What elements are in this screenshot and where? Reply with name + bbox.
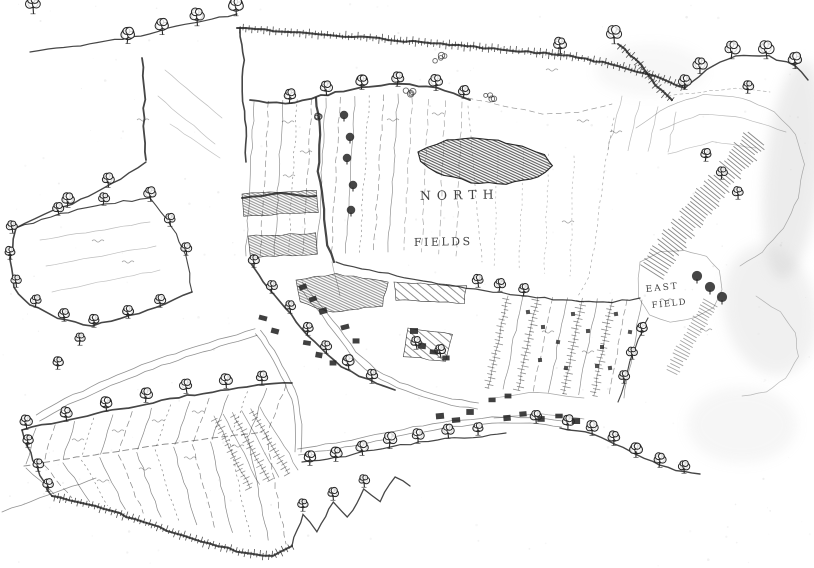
field-map-canvas: NORTHFIELDSEASTFIELD [0,0,814,568]
label-north-fields-line2: FIELDS [414,235,473,249]
label-north-fields-line1: NORTH [420,187,500,203]
scanned-map-page: NORTHFIELDSEASTFIELD [0,0,814,568]
